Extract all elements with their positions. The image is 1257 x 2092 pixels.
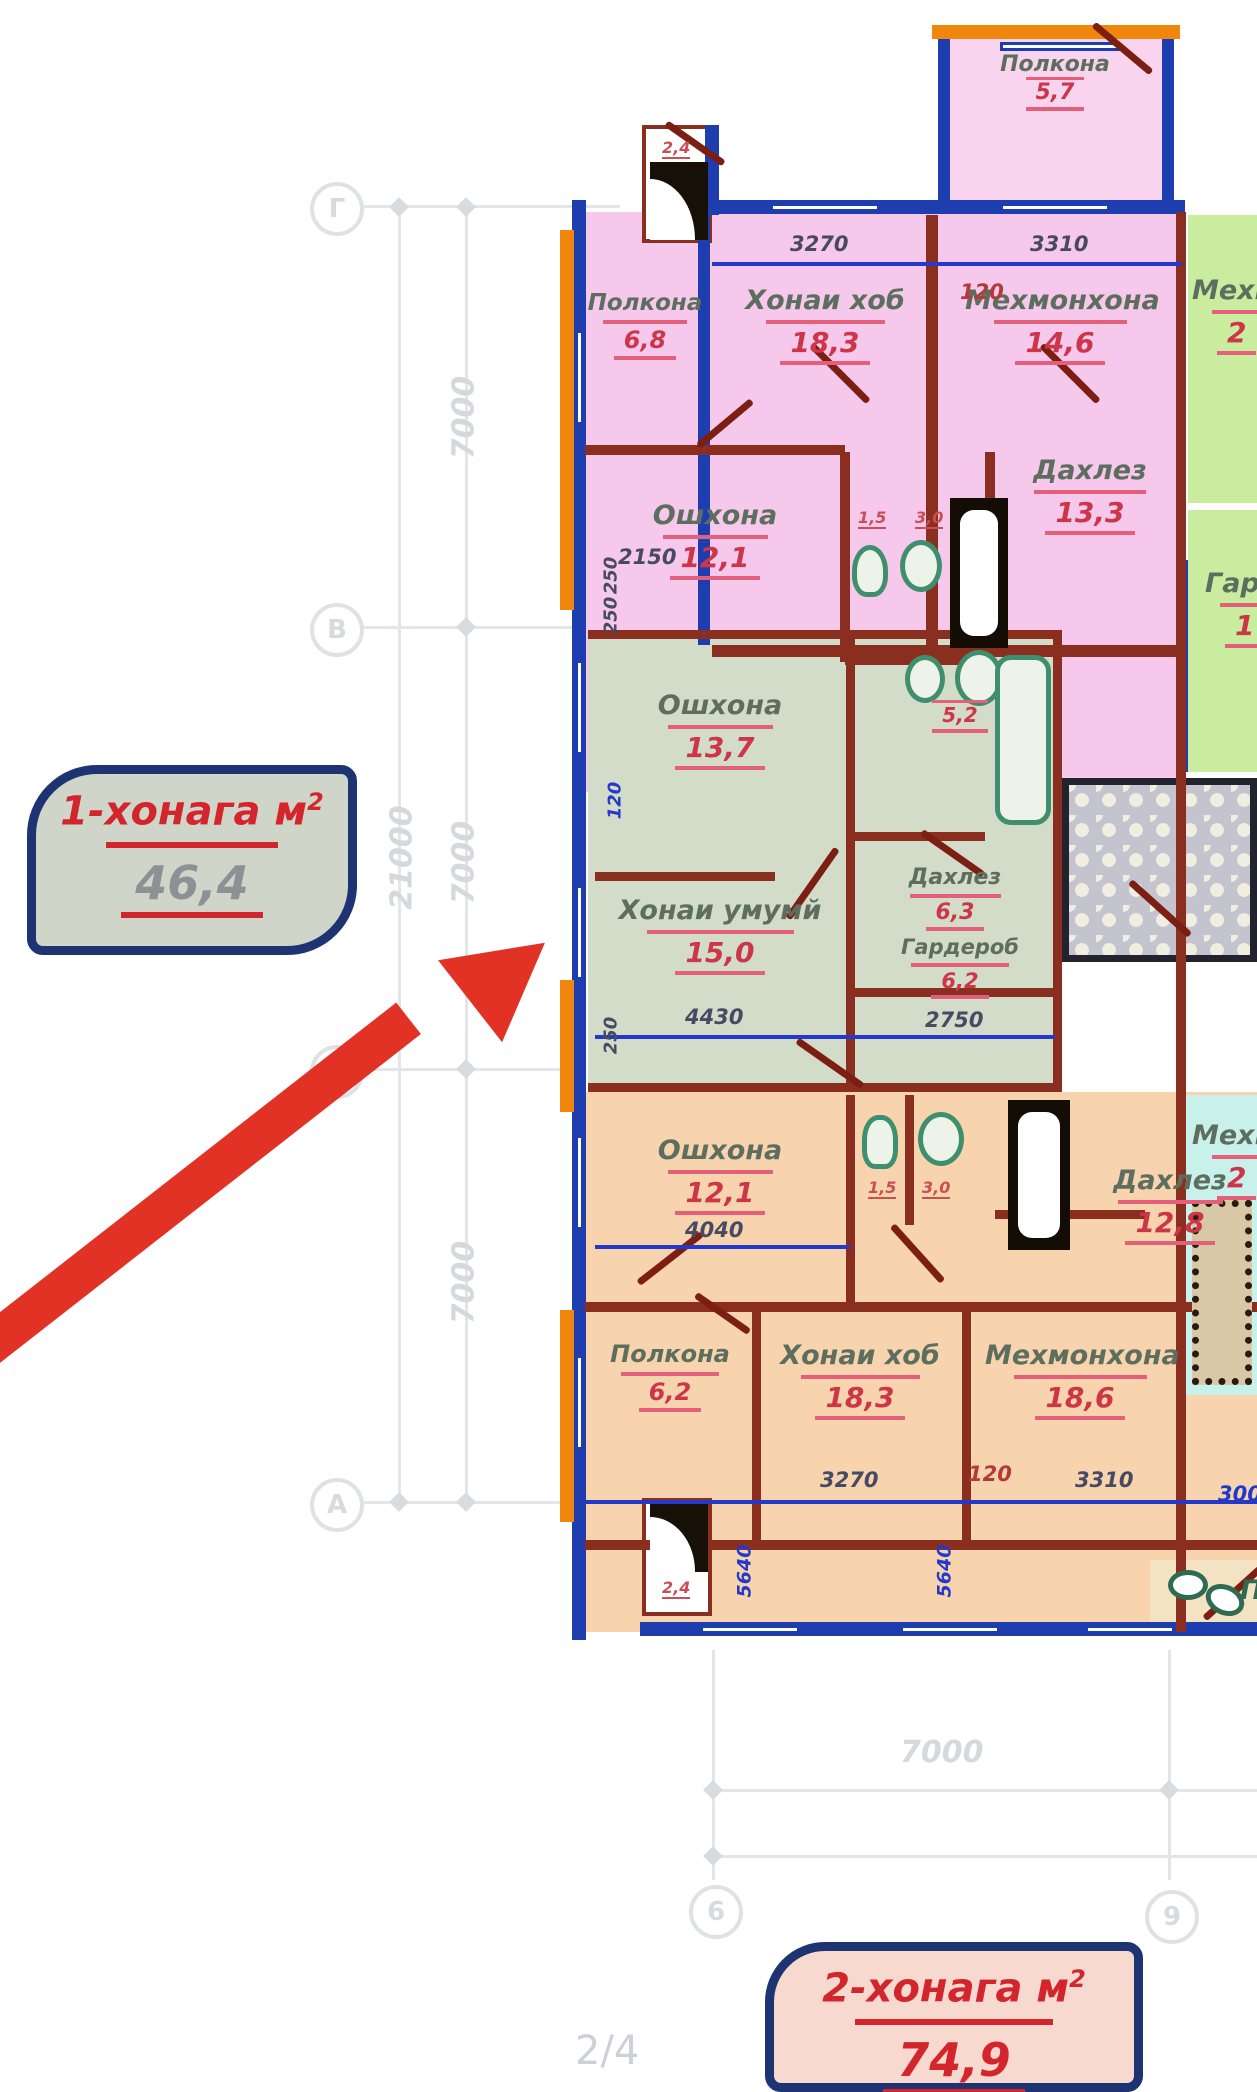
dim-250-c: 250 [600,1017,621,1055]
wall-unit1 [846,639,855,1083]
label-dahlez-2: Дахлез 6,3 [890,865,1020,931]
label-garderob-2: Гардероб 6,2 [890,935,1030,999]
pointer-arrow-head [438,902,577,1042]
cup-icon [1168,1570,1208,1600]
wall-unit2 [585,1302,1257,1312]
wall-unit2 [752,1312,761,1547]
bathtub-icon-green [995,655,1051,825]
dim-120-top: 120 [960,280,1004,304]
label-bath-30-a: 3,0 [915,508,943,529]
window [700,1625,800,1634]
window [575,660,584,755]
dim-4430: 4430 [685,1005,743,1029]
callout-one-room-title: 1-хонага м2 [36,788,348,834]
label-bottom-right-partial: П [1240,1575,1257,1606]
window [1000,203,1110,212]
grid-row-label-v: В [310,603,364,657]
window [575,1355,584,1450]
grid-tick [703,1780,723,1800]
wall [585,445,845,455]
dim-5640-b: 5640 [933,1545,955,1598]
label-oshxona-1: Ошхона 12,1 [640,500,790,580]
dim-250-b: 250 [600,597,621,635]
label-oshxona-3: Ошхона 12,1 [645,1135,795,1215]
dim-3310-bottom: 3310 [1075,1468,1133,1492]
stair-arrow-icon [650,1502,708,1572]
callout-one-room: 1-хонага м2 46,4 [27,765,357,955]
wall-orange-top-balcony [932,25,1180,39]
dim-7000-seg1: 7000 [446,376,481,460]
wall-unit1 [588,1083,1062,1092]
dim-120-mid: 120 [604,782,625,820]
dim-line [595,1035,1055,1039]
wall-unit2 [846,1095,855,1310]
dim-300: 300 [1218,1482,1257,1506]
wall-unit2 [962,1312,971,1547]
grid-col-label-6: 6 [689,1885,743,1939]
wall-orange-left-1 [560,230,574,610]
grid-tick [1159,1780,1179,1800]
label-khonai-khob-1: Хонаи хоб 18,3 [740,285,910,365]
dim-line [712,262,1182,266]
wall-unit1 [1053,630,1062,1092]
toilet-icon [905,655,945,703]
callout-one-room-value: 46,4 [121,856,263,918]
grid-tick [389,1492,409,1512]
wall-balcony-top-right [1162,38,1174,213]
pointer-arrow-shaft [0,1003,421,1416]
grid-number: 9 [1163,1902,1181,1932]
label-oshxona-2: Ошхона 13,7 [645,690,795,770]
window [1000,42,1120,51]
label-polkona-62: Полкона 6,2 [600,1340,740,1412]
wall-orange-left-2 [560,980,574,1112]
label-polkona-68: Полкона 6,8 [585,290,705,360]
grid-tick [456,617,476,637]
elevator-shaft-hatch [1062,778,1257,962]
grid-letter: Г [329,194,346,224]
grid-hdim-line [712,1855,1257,1858]
grid-tick [456,1059,476,1079]
grid-tick [389,197,409,217]
wall-interior-polkona [698,215,710,645]
superscript-2: 2 [1069,1965,1086,1993]
superscript-2: 2 [307,788,324,816]
grid-number: 6 [707,1897,725,1927]
dim-2750: 2750 [925,1008,983,1032]
dim-3310-top: 3310 [1030,232,1088,256]
dim-7000-bottom: 7000 [900,1735,984,1770]
bathtub-icon [1008,1100,1070,1250]
stair-arrow-icon [650,162,708,240]
dim-line [585,1500,1257,1504]
grid-col-line [1168,1650,1171,1880]
dim-21000: 21000 [385,805,420,909]
label-mehmonkhona-2: Мехмонхона 18,6 [985,1340,1175,1420]
callout-two-room-title: 2-хонага м2 [774,1965,1134,2011]
label-bath-30-b: 3,0 [922,1178,950,1199]
grid-col-label-9: 9 [1145,1890,1199,1944]
dim-3270-bottom: 3270 [820,1468,878,1492]
label-green-garderob: Гар 1 [1205,568,1257,648]
label-green-mehmonkhona: Мехм 2 [1192,275,1257,355]
label-su-52: 5,2 [920,700,1000,733]
grid-tick [456,1492,476,1512]
room-green-mehmonkhona [1188,215,1257,503]
window [1085,1625,1175,1634]
window [900,1625,1000,1634]
grid-tick [703,1846,723,1866]
grid-tick [456,197,476,217]
wall-unit2 [905,1095,914,1225]
grid-letter: А [327,1490,347,1520]
callout-two-room-value: 74,9 [883,2033,1025,2092]
dim-3270-top: 3270 [790,232,848,256]
dim-7000-seg2: 7000 [446,821,481,905]
callout-two-room: 2-хонага м2 74,9 [765,1942,1143,2092]
grid-letter: В [327,615,347,645]
grid-row-label-g: Г [310,182,364,236]
label-khonai-khob-2: Хонаи хоб 18,3 [775,1340,945,1420]
wall-unit1 [595,872,775,881]
dim-250-a: 250 [600,557,621,595]
wall-balcony-top-left [938,38,950,213]
label-balcony-top: Полкона 5,7 [980,52,1130,111]
dim-7000-seg3: 7000 [446,1241,481,1325]
dim-5640-a: 5640 [733,1545,755,1598]
washer-icon [918,1112,964,1166]
dim-4040: 4040 [685,1218,743,1242]
label-balcony-24-bottom: 2,4 [662,1578,690,1599]
label-dahlez-1: Дахлез 13,3 [1010,455,1170,535]
label-cyan-mehmonkhona: Мехм 2 [1192,1120,1257,1200]
floorplan-page: Г В Б А 21000 7000 7000 7000 7000 6 9 [0,0,1257,2092]
wall-orange-left-3 [560,1310,574,1522]
window [575,885,584,980]
window [575,330,584,425]
window [575,1135,584,1230]
page-indicator: 2/4 [575,2028,639,2074]
dim-120-bottom: 120 [968,1462,1012,1486]
toilet-icon [852,545,888,597]
grid-row-label-a: А [310,1478,364,1532]
toilet-icon [862,1115,898,1169]
sink-icon [900,540,942,592]
label-bath-15-a: 1,5 [858,508,886,529]
bathtub-icon [950,498,1008,648]
window [770,203,880,212]
label-bath-15-b: 1,5 [868,1178,896,1199]
label-balcony-24-top: 2,4 [662,138,690,159]
label-khonai-umumi: Хонаи умумй 15,0 [615,895,825,975]
dim-line [595,1245,850,1249]
